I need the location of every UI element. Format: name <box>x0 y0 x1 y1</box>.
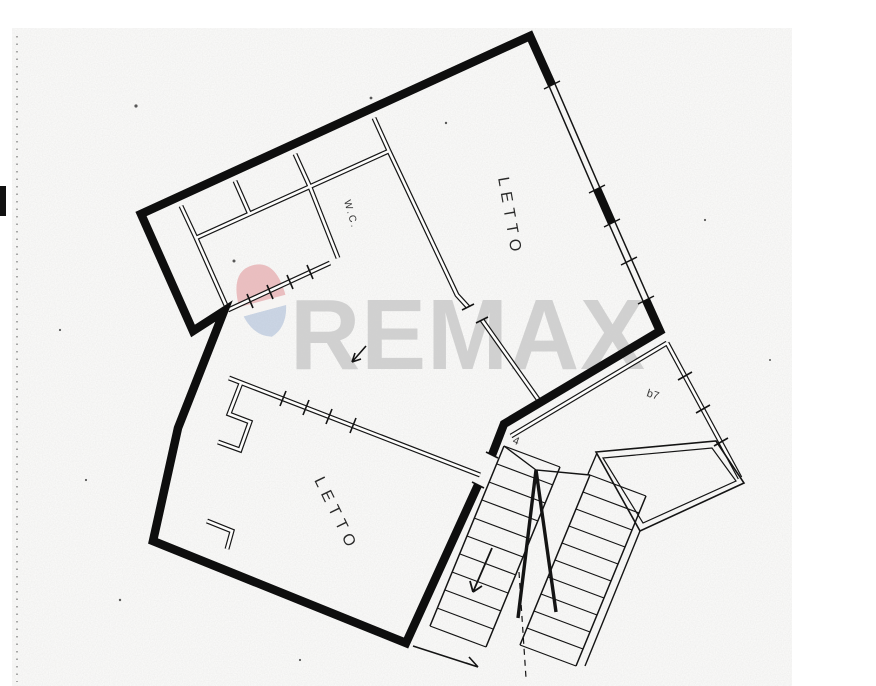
scan-edge-blob <box>0 186 6 216</box>
remax-watermark: REMAX <box>228 258 646 391</box>
floorplan-drawing: REMAX <box>0 0 876 686</box>
floorplan-scan-page: REMAX <box>0 0 876 686</box>
